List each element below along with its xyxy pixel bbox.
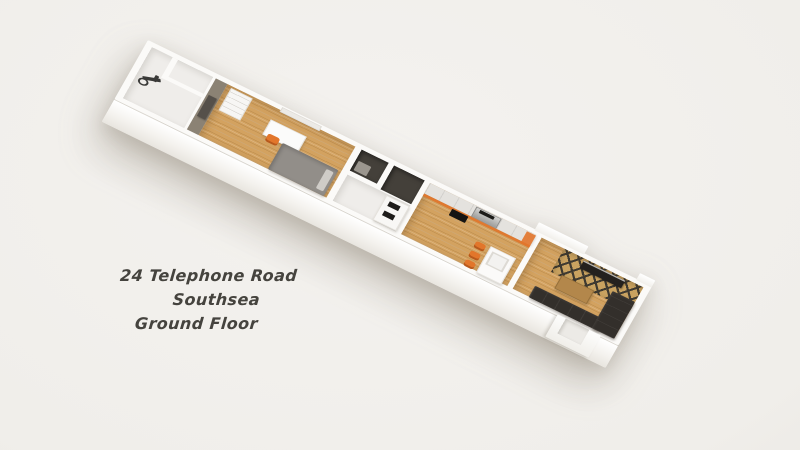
floorplan-caption: 24 Telephone Road Southsea Ground Floor: [115, 264, 263, 336]
caption-floor-line: Ground Floor: [115, 312, 259, 336]
caption-city-line: Southsea: [117, 288, 261, 312]
caption-address-line: 24 Telephone Road: [119, 264, 263, 288]
floorplan-render: [0, 0, 800, 450]
